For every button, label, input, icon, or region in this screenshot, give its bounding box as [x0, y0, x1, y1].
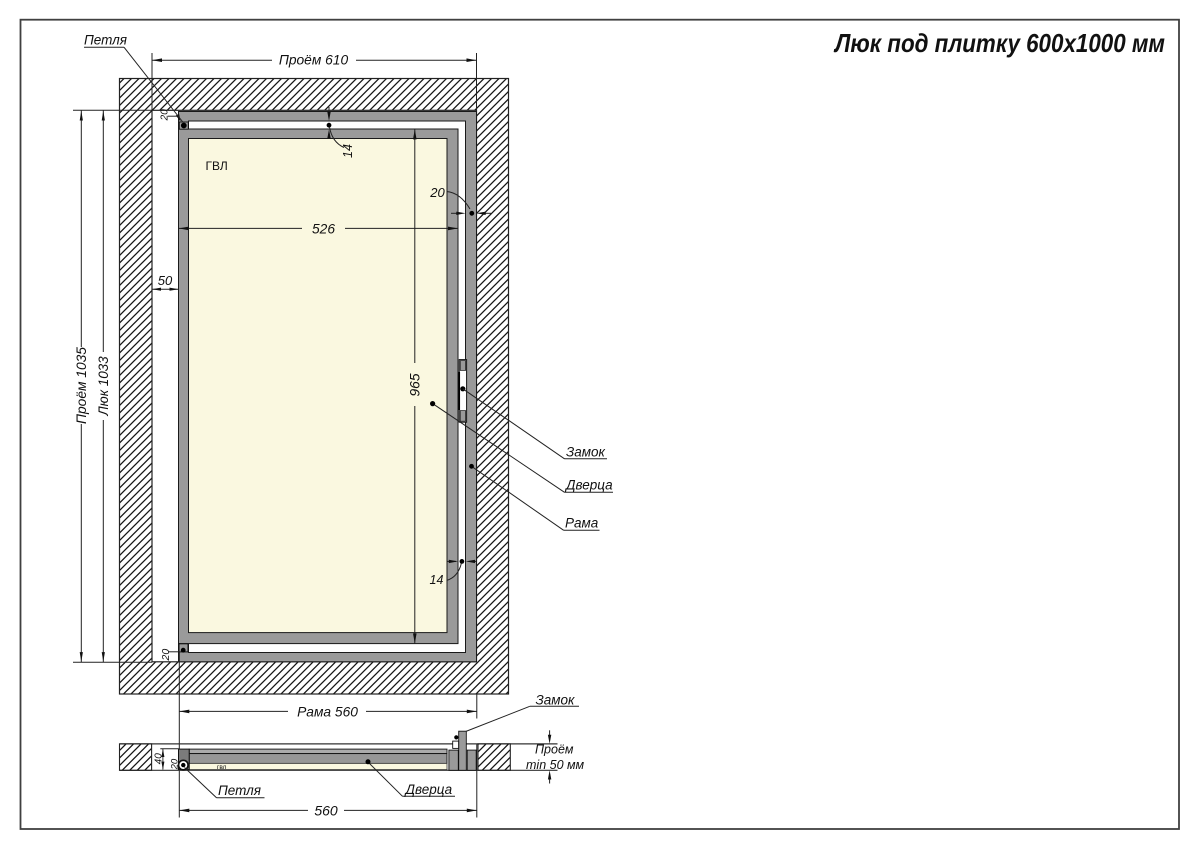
svg-text:Рама: Рама: [565, 516, 599, 531]
svg-text:ГВЛ: ГВЛ: [206, 159, 228, 173]
svg-text:Проём 1035: Проём 1035: [74, 347, 89, 424]
svg-text:526: 526: [312, 222, 335, 237]
svg-text:20: 20: [160, 109, 171, 122]
svg-text:Замок: Замок: [566, 444, 606, 459]
svg-text:14: 14: [341, 144, 355, 158]
svg-text:20: 20: [429, 185, 445, 200]
svg-text:min 50 мм: min 50 мм: [526, 758, 585, 772]
svg-text:14: 14: [430, 573, 444, 587]
svg-text:50: 50: [158, 273, 173, 288]
svg-text:Дверца: Дверца: [564, 478, 613, 493]
svg-text:20: 20: [160, 649, 172, 662]
svg-text:20: 20: [169, 758, 180, 770]
svg-text:Проём 610: Проём 610: [279, 53, 349, 68]
svg-text:Люк 1033: Люк 1033: [96, 356, 111, 417]
svg-text:Проём: Проём: [535, 743, 574, 757]
svg-text:560: 560: [314, 802, 338, 818]
svg-text:40: 40: [153, 753, 164, 765]
svg-text:Замок: Замок: [536, 693, 576, 708]
svg-text:Дверца: Дверца: [404, 782, 453, 797]
svg-text:Петля: Петля: [218, 783, 261, 798]
svg-text:гвл: гвл: [217, 764, 227, 771]
svg-text:965: 965: [407, 373, 422, 396]
svg-text:Люк под плитку 600х1000 мм: Люк под плитку 600х1000 мм: [833, 28, 1165, 58]
svg-text:Рама 560: Рама 560: [297, 704, 358, 719]
svg-text:Петля: Петля: [84, 33, 127, 48]
